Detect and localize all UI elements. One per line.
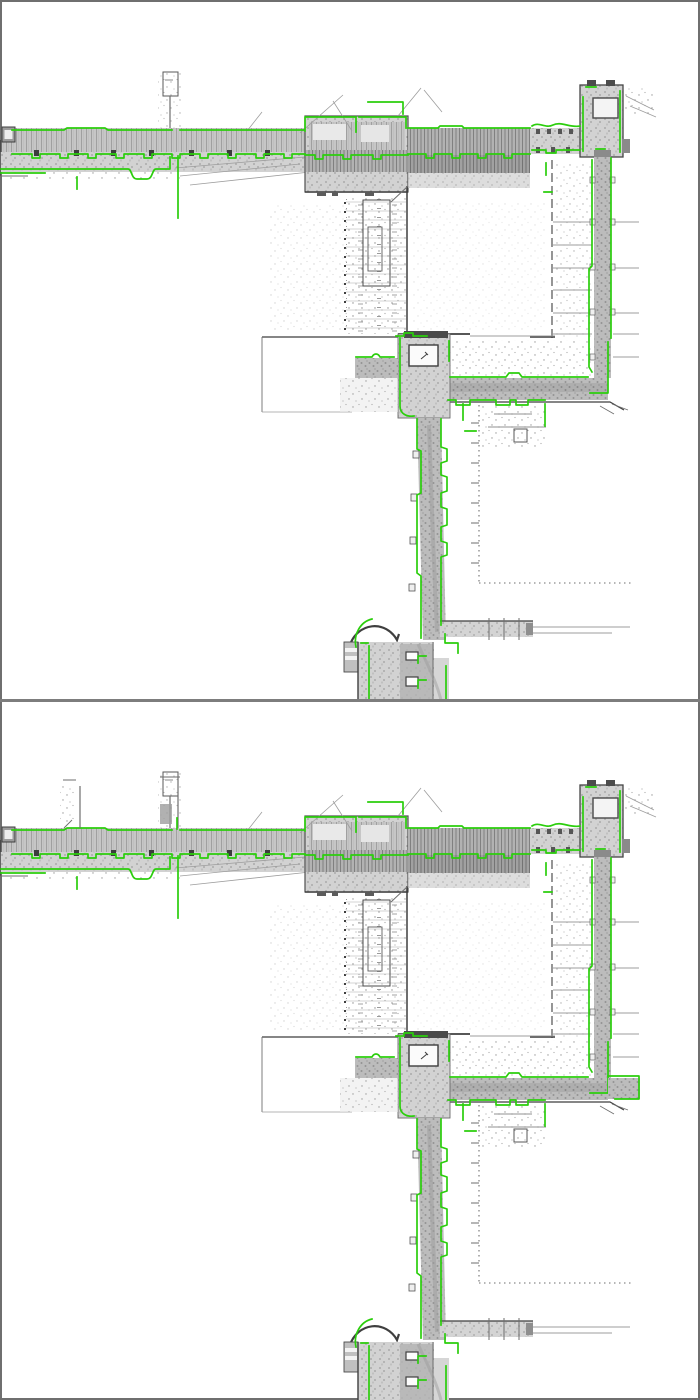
floorplan-map xyxy=(0,70,656,700)
map-panel-bottom xyxy=(0,700,700,1400)
floorplan-map xyxy=(0,770,656,1400)
scan-comparison-figure xyxy=(0,0,700,1400)
map-panel-top xyxy=(0,0,700,700)
